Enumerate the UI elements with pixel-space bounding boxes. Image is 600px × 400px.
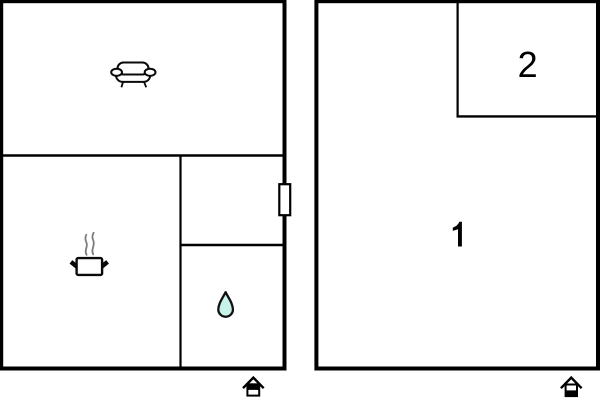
svg-text:2: 2 [518,44,538,85]
